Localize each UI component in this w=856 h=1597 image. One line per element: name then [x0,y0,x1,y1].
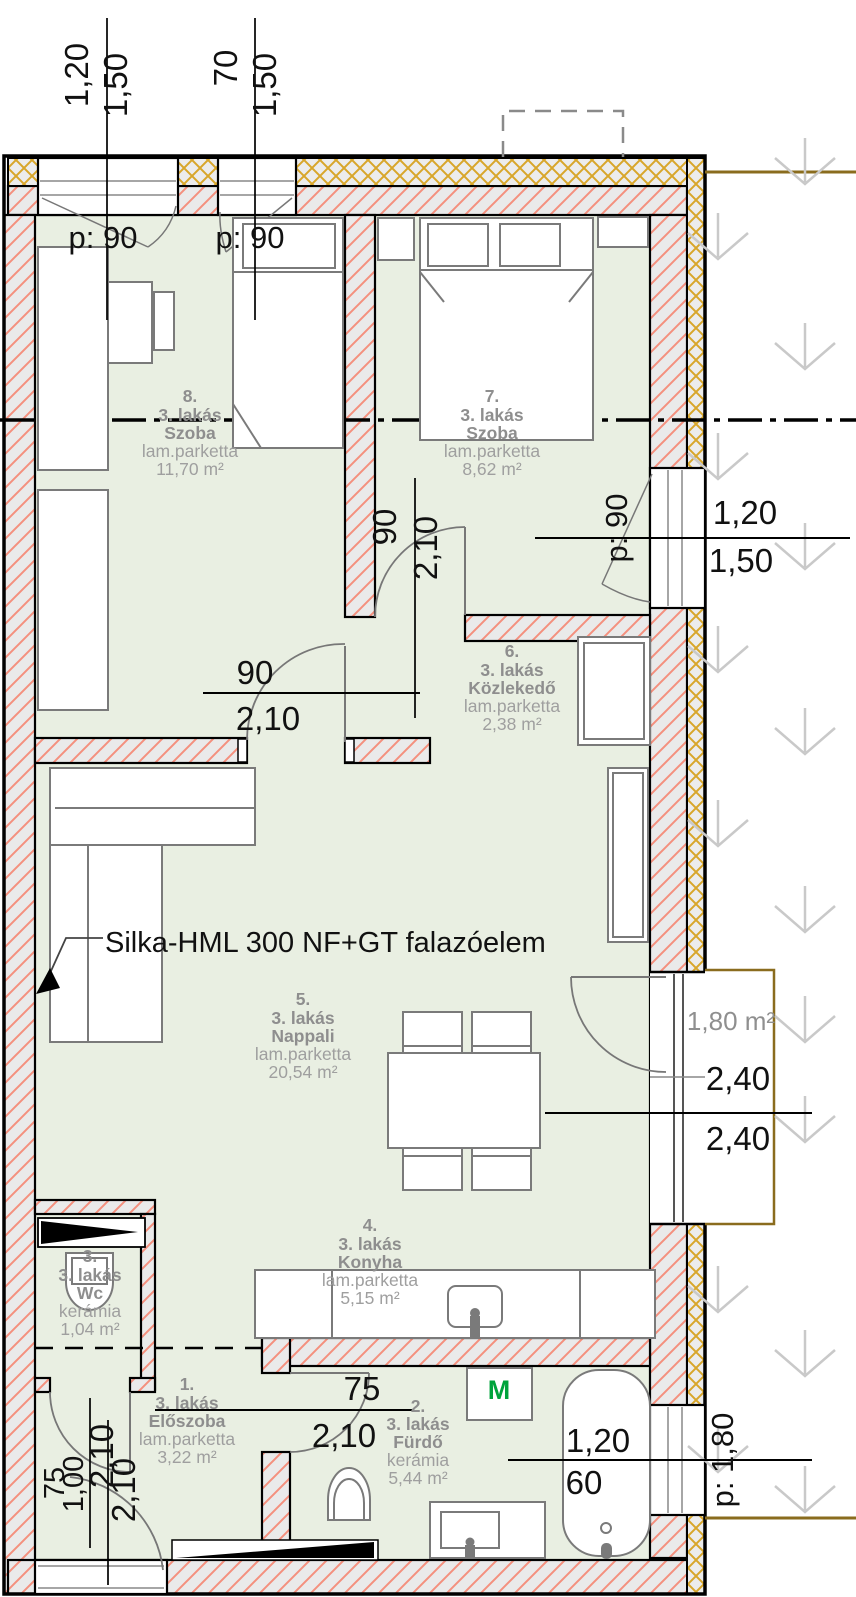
room-wc-unit: 3. lakás [58,1265,122,1285]
nightstand-right [598,217,648,247]
dim-door-room7-width: 90 [366,509,403,546]
parapet-window-room7: p: 90 [599,494,634,563]
room-8-number: 8. [183,386,198,406]
room-6-name: Közlekedő [468,678,556,698]
dim-window-room7-width: 1,20 [713,494,777,531]
room-6-number: 6. [505,641,520,661]
dim-door-bath-width: 75 [344,1370,381,1407]
dim-window-bath-height: 60 [566,1464,603,1501]
room-7-unit: 3. lakás [460,405,524,425]
room-2-number: 2. [411,1396,426,1416]
dim-window-bath-width: 1,20 [566,1422,630,1459]
dim-door-entry-height: 2,10 [105,1458,142,1522]
desk-chair [154,292,174,350]
room-wc-floor: kerámia [59,1301,122,1321]
room-5-floor: lam.parketta [255,1044,352,1064]
floor-plan-drawing: 1,20 1,50 70 1,50 p: 90 p: 90 90 2,10 p:… [0,0,856,1597]
dim-window-a-width: 1,20 [58,43,95,107]
dim-window-room7-height: 1,50 [709,542,773,579]
dim-door-room8-width: 90 [237,654,274,691]
dim-window-b-width: 70 [207,50,244,87]
sofa-top [50,768,255,845]
room-1-floor: lam.parketta [139,1429,236,1449]
pillow [428,224,488,266]
desk [108,282,152,363]
room-8-floor: lam.parketta [142,441,239,461]
room-2-floor: kerámia [387,1450,450,1470]
room-wc-name: Wc [77,1283,104,1303]
chair [403,1148,462,1190]
dim-balcony-height: 2,40 [706,1120,770,1157]
room-6-unit: 3. lakás [480,660,544,680]
room-7-floor: lam.parketta [444,441,541,461]
room-6-floor: lam.parketta [464,696,561,716]
room-2-unit: 3. lakás [386,1414,450,1434]
room-8-name: Szoba [164,423,216,443]
dim-window-b-height: 1,50 [246,53,283,117]
room-8-area: 11,70 m² [156,459,224,479]
bed-single [38,247,108,470]
terrain [688,138,856,1518]
roof-overhang-dashed [503,111,623,157]
room-4-floor: lam.parketta [322,1270,419,1290]
chair [472,1148,531,1190]
room-1-name: Előszoba [149,1411,226,1431]
room-2-area: 5,44 m² [388,1468,447,1488]
room-6-area: 2,38 m² [482,714,541,734]
room-1-area: 3,22 m² [157,1447,216,1467]
room-7-number: 7. [485,386,500,406]
room-2-name: Fürdő [393,1432,443,1452]
room-4-name: Konyha [338,1252,402,1272]
nightstand-left [378,218,414,260]
room-4-unit: 3. lakás [338,1234,402,1254]
dim-door-bath-height: 2,10 [312,1417,376,1454]
parapet-window-bath: p: 1,80 [705,1413,740,1508]
room-1-number: 1. [180,1374,195,1394]
room-wc-area: 1,04 m² [60,1319,119,1339]
dim-balcony-width: 2,40 [706,1060,770,1097]
parapet-window-b: p: 90 [216,220,285,255]
room-7-area: 8,62 m² [462,459,521,479]
room-5-area: 20,54 m² [268,1062,337,1082]
room-8-unit: 3. lakás [158,405,222,425]
room-4-area: 5,15 m² [340,1288,399,1308]
room-5-name: Nappali [271,1026,334,1046]
room-5-unit: 3. lakás [271,1008,335,1028]
pillow [500,224,560,266]
washing-machine-label: M [488,1375,511,1405]
dim-door-room7-height: 2,10 [407,516,444,580]
dim-door-room8-height: 2,10 [236,700,300,737]
room-7-name: Szoba [466,423,518,443]
wall-material-note: Silka-HML 300 NF+GT falazóelem [105,927,546,959]
dining-table [388,1053,540,1148]
floor-plan-page: 1,20 1,50 70 1,50 p: 90 p: 90 90 2,10 p:… [0,0,856,1597]
parapet-window-a: p: 90 [69,220,138,255]
room-4-number: 4. [363,1215,378,1235]
balcony-area: 1,80 m² [687,1006,775,1036]
wardrobe [38,490,108,710]
room-5-number: 5. [296,989,311,1009]
dim-window-a-height: 1,50 [97,53,134,117]
room-1-unit: 3. lakás [155,1393,219,1413]
room-wc-number: 3. [83,1246,98,1266]
